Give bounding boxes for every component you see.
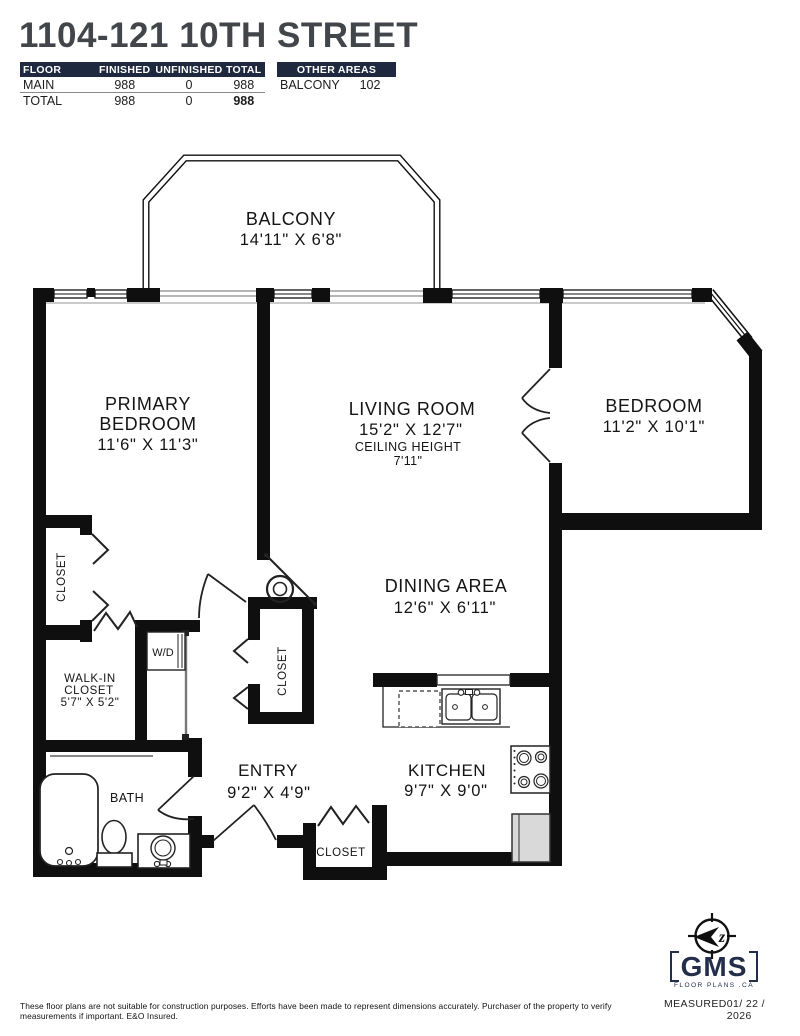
svg-text:DINING AREA: DINING AREA	[385, 576, 508, 596]
room-label-primary-bedroom: PRIMARY BEDROOM 11'6" X 11'3"	[97, 394, 198, 454]
svg-text:12'6" X 6'11": 12'6" X 6'11"	[394, 599, 496, 617]
room-label-living-room: LIVING ROOM 15'2" X 12'7" CEILING HEIGHT…	[349, 399, 476, 468]
fridge	[512, 814, 550, 862]
room-label-balcony: BALCONY 14'11" X 6'8"	[240, 209, 342, 249]
svg-text:ENTRY: ENTRY	[238, 761, 298, 780]
svg-text:WALK-IN: WALK-IN	[64, 673, 116, 685]
room-label-entry: ENTRY 9'2" X 4'9"	[227, 761, 311, 802]
logo-text: GMS	[681, 953, 748, 981]
tub-drain	[66, 848, 73, 855]
svg-text:KITCHEN: KITCHEN	[408, 761, 486, 780]
room-label-bedroom: BEDROOM 11'2" X 10'1"	[603, 396, 705, 436]
logo-bracket-left-icon	[670, 951, 679, 982]
toilet-tank	[97, 853, 132, 867]
bifold-center-closet-bottom	[234, 687, 248, 709]
bifold-left-closet-top	[92, 534, 108, 564]
corner-window	[710, 292, 749, 340]
corner-wall-post	[742, 336, 757, 355]
svg-text:11'2" X 10'1": 11'2" X 10'1"	[603, 418, 705, 436]
bath-door	[158, 776, 194, 819]
gms-logo: GMS FLOOR PLANS .CA	[662, 951, 766, 989]
measured-date: 01/ 22 / 2026	[727, 998, 790, 1022]
measured-line: MEASURED 01/ 22 / 2026	[664, 998, 790, 1022]
dishwasher	[399, 691, 440, 727]
svg-text:CEILING HEIGHT: CEILING HEIGHT	[355, 440, 461, 454]
svg-text:LIVING ROOM: LIVING ROOM	[349, 399, 476, 419]
floor-plan-drawing: BALCONY 14'11" X 6'8" PRIMARY BEDROOM 11…	[0, 0, 800, 1036]
svg-text:BEDROOM: BEDROOM	[99, 414, 196, 434]
bath-fixtures	[40, 756, 190, 868]
corner-shelf	[264, 553, 317, 606]
room-label-wd: W/D	[152, 647, 173, 659]
svg-text:15'2" X 12'7": 15'2" X 12'7"	[359, 421, 463, 439]
bifold-left-closet-bottom	[92, 591, 108, 621]
french-doors	[522, 369, 550, 462]
svg-text:PRIMARY: PRIMARY	[105, 394, 191, 414]
floor-plan-page: 1104-121 10TH STREET FLOOR FINISHED UNFI…	[0, 0, 800, 1036]
room-label-kitchen: KITCHEN 9'7" X 9'0"	[404, 761, 488, 800]
svg-text:14'11" X 6'8": 14'11" X 6'8"	[240, 231, 342, 249]
svg-text:11'6" X 11'3": 11'6" X 11'3"	[97, 436, 198, 454]
bifold-walk-in-closet	[94, 612, 137, 631]
measured-label: MEASURED	[664, 998, 727, 1022]
svg-text:9'7" X 9'0": 9'7" X 9'0"	[404, 782, 488, 800]
svg-text:BALCONY: BALCONY	[246, 209, 336, 229]
stove	[511, 746, 550, 793]
bifold-doors	[92, 534, 369, 826]
compass-letter: z	[718, 929, 726, 946]
kitchen-pass-through-counter	[437, 675, 510, 685]
bifold-entry-closet	[318, 806, 369, 826]
bifold-center-closet-top	[234, 639, 248, 663]
disclaimer-text: These floor plans are not suitable for c…	[20, 1001, 650, 1021]
svg-text:BEDROOM: BEDROOM	[605, 396, 702, 416]
room-label-closet-left: CLOSET	[56, 552, 68, 602]
entry-door	[213, 805, 276, 841]
svg-text:7'11": 7'11"	[394, 454, 423, 468]
primary-bedroom-door	[199, 574, 246, 618]
svg-text:CLOSET: CLOSET	[64, 685, 114, 697]
room-label-walk-in-closet: WALK-IN CLOSET 5'7" X 5'2"	[61, 673, 120, 709]
logo-subtext: FLOOR PLANS .CA	[662, 982, 766, 989]
kitchen-sink	[442, 689, 500, 724]
room-label-bath: BATH	[110, 791, 144, 805]
toilet	[102, 821, 126, 854]
room-labels: BALCONY 14'11" X 6'8" PRIMARY BEDROOM 11…	[56, 209, 705, 859]
svg-text:9'2" X 4'9": 9'2" X 4'9"	[227, 784, 311, 802]
svg-text:5'7" X 5'2": 5'7" X 5'2"	[61, 697, 120, 709]
logo-bracket-right-icon	[749, 951, 758, 982]
room-label-closet-center: CLOSET	[277, 646, 289, 696]
room-label-dining-area: DINING AREA 12'6" X 6'11"	[385, 576, 508, 617]
room-label-closet-entry: CLOSET	[316, 847, 366, 859]
